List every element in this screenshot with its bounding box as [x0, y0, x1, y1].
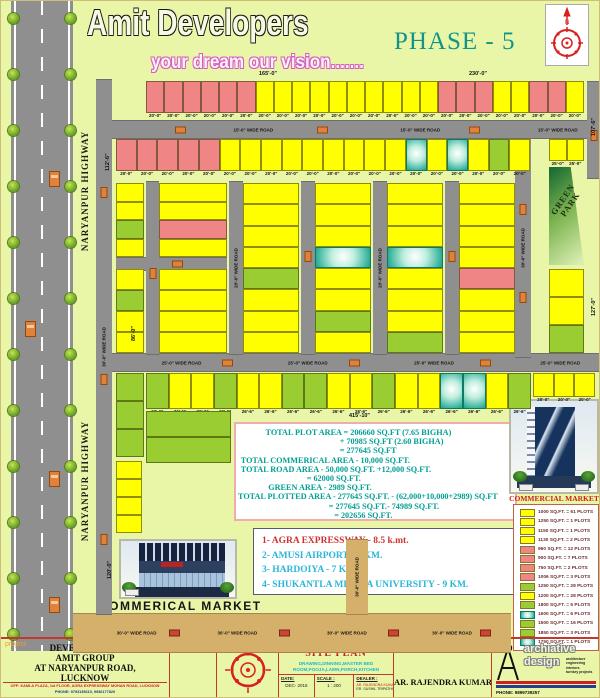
road-label: 30'-0" WIDE ROAD [117, 631, 157, 636]
plot-cell [459, 311, 515, 332]
plot-cell [387, 311, 443, 332]
plot-cell [427, 139, 448, 171]
road-label: 25'-0" WIDE ROAD [414, 360, 454, 365]
car-icon [388, 630, 399, 637]
legend-swatch [520, 527, 535, 535]
car-icon [175, 126, 186, 133]
plot-stack [159, 269, 227, 353]
plot-cell [468, 139, 489, 171]
plot-cell [219, 81, 237, 113]
plot-cell [385, 139, 406, 171]
dim-label: 20'-0" [493, 113, 511, 120]
area-summary-line: TOTAL ROAD AREA - 50,000 SQ.FT. +12,000 … [238, 465, 513, 474]
plot-stack [116, 373, 144, 457]
legend-swatch [520, 509, 535, 517]
dim-label: 20'-0" [566, 113, 584, 120]
plot-cell [508, 373, 531, 409]
palm-tree-icon [513, 471, 527, 482]
tree-icon [65, 181, 76, 192]
road [301, 181, 315, 355]
dim-label: 20'-0" [199, 171, 220, 178]
plot-cell [364, 139, 385, 171]
plot-cell [159, 183, 227, 202]
plot-cell [274, 81, 292, 113]
plot-cell [164, 81, 182, 113]
car-icon [520, 204, 527, 215]
palm-tree-icon [220, 582, 234, 593]
plot-cell [387, 183, 443, 204]
dim-label: 26'-6" [304, 409, 327, 416]
car-icon [317, 126, 328, 133]
dim-label: 20'-0" [344, 171, 365, 178]
plot-cell [183, 81, 201, 113]
dim-label: 20'-0" [178, 171, 199, 178]
distance-line: 3- HARDOIYA - 7 KM. [262, 563, 514, 578]
road-label: 20'-0" WIDE ROAD [234, 248, 239, 288]
plot-cell [549, 297, 584, 325]
tagline: your dream our vision....... [151, 52, 364, 74]
plot-cell [315, 226, 371, 247]
plot-cell [116, 429, 144, 457]
legend-label: 900 SQ.FT. = 7 PLOTS [538, 556, 588, 561]
plot-legend: 1000 SQ.FT. = 61 PLOTS1250 SQ.FT. = 1 PL… [513, 504, 599, 651]
legend-swatch [520, 583, 535, 591]
road-label: 30'-0" WIDE ROAD [102, 327, 107, 367]
car-icon [279, 630, 290, 637]
tree-icon [65, 349, 76, 360]
compass-icon: N [545, 4, 589, 66]
car-icon [149, 268, 156, 279]
plot-cell [116, 461, 142, 479]
plot-cell [159, 290, 227, 311]
legend-label: 1150 SQ.FT. = 1 PLOTS [538, 529, 590, 534]
plot-cell [243, 311, 299, 332]
tree-icon [65, 69, 76, 80]
plot-cell [169, 373, 192, 409]
tree-icon [8, 69, 19, 80]
legend-label: 1250 SQ.FT. = 1 PLOTS [538, 519, 590, 524]
plot-cell [292, 81, 310, 113]
road: 30'-0" WIDE ROAD30'-0" WIDE ROAD30'-0" W… [73, 613, 511, 653]
legend-row: 1150 SQ.FT. = 1 PLOTS [516, 527, 596, 535]
dim-label: 26'-6" [440, 409, 463, 416]
plot-cell [159, 239, 227, 258]
road-edge-line [14, 1, 16, 651]
plot-cell [282, 373, 305, 409]
road-label: 30'-0" WIDE ROAD [327, 631, 367, 636]
plot-cell [315, 289, 371, 310]
plot-cell [347, 81, 365, 113]
plot-cell [533, 373, 554, 397]
road-label: 15'-0" WIDE ROAD [233, 127, 273, 132]
plot-cell [459, 183, 515, 204]
dim-label: 20'-0" [164, 113, 182, 120]
road-label: 25'-0" WIDE ROAD [288, 360, 328, 365]
plot-cell [146, 437, 231, 463]
tree-icon [8, 573, 19, 584]
dimension-label: 107'-6" [591, 118, 597, 136]
dim-label: 25'-0" [567, 161, 585, 168]
tree-icon [8, 461, 19, 472]
logo-service-line: turnkey projects [566, 670, 592, 674]
plot-cell [116, 220, 144, 239]
plot-cell [116, 479, 142, 497]
logo-phone: PHONE: 9899739257 [496, 690, 540, 695]
legend-label: 960 SQ.FT. = 12 PLOTS [538, 547, 590, 552]
developer-line: AT NARYANPUR ROAD, [1, 663, 169, 673]
svg-text:N: N [565, 20, 569, 26]
dim-label: 20'-0" [347, 113, 365, 120]
plot-cell [116, 139, 137, 171]
dim-label: 26'-6" [282, 409, 305, 416]
dimension-label: 415'-10" [349, 413, 370, 419]
dim-label: 20'-0" [365, 113, 383, 120]
car-icon [349, 359, 360, 366]
dim-label: 20'-0" [427, 171, 448, 178]
car-icon [520, 292, 527, 303]
plot-cell [327, 373, 350, 409]
dim-label: 20'-0" [529, 113, 547, 120]
legend-row: 1250 SQ.FT. = 1 PLOTS [516, 518, 596, 526]
plot-cell [243, 226, 299, 247]
plot-cell [387, 332, 443, 353]
plot-cell [315, 247, 371, 268]
plot-cell [282, 139, 303, 171]
tree-icon [8, 13, 19, 24]
dim-label: 20'-0" [237, 113, 255, 120]
car-icon [449, 251, 456, 262]
title-subrow: DATE: DEC- 2018 SCALE : 1 : 200 DEALER :… [279, 674, 393, 697]
plot-cell [323, 139, 344, 171]
plot-cell [459, 226, 515, 247]
plot-cell [475, 81, 493, 113]
plot-stack [116, 461, 142, 533]
road-edge-line [68, 1, 70, 651]
plot-cell [344, 139, 365, 171]
plot-cell [178, 139, 199, 171]
road: 20'-0" WIDE ROAD [373, 181, 387, 355]
dim-label: 20'-0" [468, 171, 489, 178]
date-cell: DATE: DEC- 2018 [279, 675, 314, 697]
plot-cell [256, 81, 274, 113]
legend-swatch [520, 629, 535, 637]
dim-label: 20'-0" [420, 113, 438, 120]
tree-icon [8, 405, 19, 416]
plot-cell [243, 183, 299, 204]
dim-label: 20'-0" [509, 171, 530, 178]
plot-cell [302, 139, 323, 171]
plot-cell [456, 81, 474, 113]
logo-address-line [496, 681, 596, 684]
car-icon [49, 471, 60, 487]
tree-icon [8, 237, 19, 248]
tree-icon [65, 517, 76, 528]
car-icon [480, 630, 491, 637]
plot-stack [387, 183, 443, 353]
legend-label: 1250 SQ.FT. = 28 PLOTS [538, 584, 593, 589]
plot-stack [243, 183, 299, 353]
dim-label: 20'-0" [292, 113, 310, 120]
road [445, 181, 459, 355]
dim-label: 25'-0" [549, 161, 567, 168]
road-label: 30'-0" WIDE ROAD [355, 557, 360, 597]
dim-label: 20'-0" [220, 171, 241, 178]
distance-line: 4- SHUKANTLA MISHRA UNIVERSITY - 9 KM. [262, 578, 514, 593]
legend-label: 750 SQ.FT. = 2 PLOTS [538, 566, 588, 571]
dim-label: 20'-0" [274, 113, 292, 120]
commercial-market-label-left: COMMERICAL MARKET [99, 599, 262, 613]
plot-cell [383, 81, 401, 113]
plot-cell [146, 373, 169, 409]
plot-cell [440, 373, 463, 409]
road-label: 25'-0" WIDE ROAD [162, 360, 202, 365]
car-icon [125, 589, 139, 596]
plot-cell [116, 290, 144, 311]
plot-cell [315, 332, 371, 353]
plot-cell [116, 373, 144, 401]
plot-cell [406, 139, 427, 171]
legend-label: 1200 SQ.FT. = 28 PLOTS [538, 594, 593, 599]
dim-label: 20'-0" [402, 113, 420, 120]
plot-cell [214, 373, 237, 409]
legend-label: 1850 SQ.FT. = 3 PLOTS [538, 631, 590, 636]
building-top-floor [139, 543, 225, 561]
plot-row [146, 81, 584, 113]
plot-cell [159, 269, 227, 290]
plot-cell [387, 247, 443, 268]
plot-cell [315, 268, 371, 289]
dimension-label: 86'-0" [131, 326, 137, 341]
plot-stack [459, 183, 515, 353]
legend-row: 1500 SQ.FT. = 16 PLOTS [516, 620, 596, 628]
plot-cell [420, 81, 438, 113]
plot-cell [493, 81, 511, 113]
plot-cell [372, 373, 395, 409]
legend-swatch [520, 601, 535, 609]
brand-title: Amit Developers [87, 2, 309, 44]
car-icon [169, 630, 180, 637]
plot-row [549, 139, 584, 161]
plot-cell [146, 81, 164, 113]
car-icon [480, 359, 491, 366]
road-label: 30'-0" WIDE ROAD [432, 631, 472, 636]
plot-cell [243, 332, 299, 353]
plot-cell [261, 139, 282, 171]
plot-cell [116, 239, 144, 258]
plot-cell [549, 269, 584, 297]
plot-cell [159, 332, 227, 353]
tree-icon [8, 125, 19, 136]
plot-cell [220, 139, 241, 171]
dim-label: 26'-6" [237, 409, 260, 416]
plot-cell [459, 332, 515, 353]
plot-cell [459, 247, 515, 268]
plot-cell [159, 311, 227, 332]
dim-label: 20'-0" [554, 397, 575, 404]
plot-cell [549, 139, 567, 161]
road-label: 20'-0" WIDE ROAD [378, 248, 383, 288]
dimension-label: 127'-0" [591, 298, 597, 316]
dim-label: 26'-6" [259, 409, 282, 416]
area-summary-line: TOTAL PLOT AREA = 206660 SQ.FT (7.65 BIG… [238, 428, 513, 437]
legend-swatch [520, 573, 535, 581]
plot-cell [137, 139, 158, 171]
plot-stack [146, 411, 231, 463]
naryanpur-highway: NARYANPUR HIGHWAY NARYANPUR HIGHWAY [11, 1, 73, 651]
dim-label: 26'-6" [508, 409, 531, 416]
drawing-subtitle: ROOM,POOJA,LAWN,PORCH,KITCHEN [279, 667, 393, 672]
legend-row: 1130 SQ.FT. = 2 PLOTS [516, 536, 596, 544]
road-label: 15'-0" WIDE ROAD [400, 127, 440, 132]
tower-window-strip [527, 407, 535, 479]
plot-band: 20'-0"20'-0"20'-0"20'-0"20'-0"20'-0"20'-… [116, 139, 530, 178]
dim-label: 20'-0" [116, 171, 137, 178]
logo-name-2: design [524, 656, 559, 668]
dim-label: 20'-0" [438, 113, 456, 120]
plot-cell [240, 139, 261, 171]
dim-label: 20'-0" [219, 113, 237, 120]
dim-label: 20'-0" [282, 171, 303, 178]
dimension-label: 112'-6" [105, 153, 111, 171]
legend-label: 1600 SQ.FT. = 6 PLOTS [538, 612, 590, 617]
highway-label: NARYANPUR HIGHWAY [80, 131, 90, 251]
area-summary-line: = 277645 SQ.FT [238, 446, 513, 455]
dim-labels: 25'-0"25'-0" [549, 161, 584, 168]
scale-cell: SCALE : 1 : 200 [314, 675, 354, 697]
phase-label: PHASE - 5 [394, 28, 516, 56]
plot-stack [159, 183, 227, 257]
plot-cell [116, 311, 144, 332]
developer-line: AMIT GROUP [1, 653, 169, 663]
plot-cell [402, 81, 420, 113]
office-phone: PHONE: 9793135610, 9936177820 [3, 690, 167, 694]
legend-swatch [520, 536, 535, 544]
legend-row: 1250 SQ.FT. = 28 PLOTS [516, 583, 596, 591]
dim-label: 20'-0" [183, 113, 201, 120]
plot-row [533, 373, 595, 397]
plot-cell [116, 269, 144, 290]
plot-cell [387, 289, 443, 310]
plot-cell [509, 139, 530, 171]
plot-band: 26'-6"26'-6"26'-6"26'-6"26'-6"26'-6"26'-… [146, 373, 531, 416]
tree-icon [8, 181, 19, 192]
plot-cell [116, 497, 142, 515]
logo-name-1: archiative [524, 643, 575, 655]
dim-label: 20'-0" [511, 113, 529, 120]
dim-label: 26'-6" [418, 409, 441, 416]
road: 30'-0" WIDE ROAD [346, 539, 368, 615]
plot-cell [116, 183, 144, 202]
dim-label: 20'-0" [447, 171, 468, 178]
dim-label: 20'-0" [137, 171, 158, 178]
car-icon [101, 187, 108, 198]
area-summary-line: = 202656 SQ.FT. [238, 511, 513, 520]
site-plan-sheet: NARYANPUR HIGHWAY NARYANPUR HIGHWAY Amit… [0, 0, 600, 698]
plot-cell [459, 204, 515, 225]
plot-cell [243, 204, 299, 225]
plot-cell [489, 139, 510, 171]
dim-label: 26'-6" [463, 409, 486, 416]
plot-cell [463, 373, 486, 409]
plot-cell [259, 373, 282, 409]
plot-cell [387, 204, 443, 225]
plot-cell [237, 373, 260, 409]
office-address: OFF: KAMLA PLAZA, 1st FLOOR, AGRA EXPRES… [3, 682, 167, 688]
distance-line: 2- AMUSI AIRPORT - 8 KM. [262, 549, 514, 564]
plot-cell [574, 373, 595, 397]
dim-labels: 20'-0"20'-0"20'-0" [533, 397, 595, 404]
plot-cell [387, 226, 443, 247]
dim-label: 20'-0" [329, 113, 347, 120]
plot-cell [146, 411, 231, 437]
dim-label: 20'-0" [475, 113, 493, 120]
plot-cell [315, 183, 371, 204]
drawing-subtitle: DRAWING,DINNING,MASTER BED [279, 661, 393, 666]
logo-services: architectureengineeringinteriorsturnkey … [566, 657, 592, 674]
legend-row: 900 SQ.FT. = 7 PLOTS [516, 555, 596, 563]
car-icon [222, 359, 233, 366]
plot-cell [365, 81, 383, 113]
legend-swatch [520, 546, 535, 554]
dim-label: 20'-0" [548, 113, 566, 120]
legend-row: 1200 SQ.FT. = 28 PLOTS [516, 592, 596, 600]
area-summary-line: = 277645 SQ.FT.- 74989 SQ.FT. [238, 502, 513, 511]
car-icon [25, 321, 36, 337]
palm-tree-icon [581, 471, 595, 482]
dim-label: 26'-6" [395, 409, 418, 416]
dim-label: 20'-0" [456, 113, 474, 120]
tree-icon [65, 13, 76, 24]
road-center-line [41, 1, 43, 651]
plot-cell [529, 81, 547, 113]
plot-cell [116, 515, 142, 533]
building-signboard [161, 562, 183, 567]
architect-name: AR. RAJENDRA KUMAR [394, 677, 491, 687]
dim-label: 20'-0" [574, 397, 595, 404]
dim-label: 20'-0" [383, 113, 401, 120]
road [146, 181, 159, 355]
highway-label: NARYANPUR HIGHWAY [80, 421, 90, 541]
dim-label: 26'-6" [372, 409, 395, 416]
tree-icon [8, 349, 19, 360]
dim-label: 20'-0" [302, 171, 323, 178]
plot-cell [157, 139, 178, 171]
dimension-label: 230'-0" [469, 71, 487, 77]
plot-stack [116, 269, 144, 353]
dim-label: 20'-0" [256, 113, 274, 120]
legend-row: 1006 SQ.FT. = 3 PLOTS [516, 573, 596, 581]
tree-icon [65, 573, 76, 584]
legend-row: 1600 SQ.FT. = 6 PLOTS [516, 611, 596, 619]
dim-labels: 20'-0"20'-0"20'-0"20'-0"20'-0"20'-0"20'-… [146, 113, 584, 120]
legend-row: 750 SQ.FT. = 2 PLOTS [516, 564, 596, 572]
legend-swatch [520, 620, 535, 628]
legend-swatch [520, 611, 535, 619]
car-icon [172, 261, 183, 268]
plot-cell [554, 373, 575, 397]
plot-cell [438, 81, 456, 113]
plot-cell [243, 268, 299, 289]
plot-band: 25'-0"25'-0" [549, 139, 584, 168]
plot-stack [549, 269, 584, 353]
legend-swatch [520, 518, 535, 526]
commercial-market-render-left [119, 539, 237, 599]
plot-cell [447, 139, 468, 171]
legend-row: 1000 SQ.FT. = 61 PLOTS [516, 509, 596, 517]
car-icon [305, 251, 312, 262]
plot-cell [243, 289, 299, 310]
area-summary-line: + 70985 SQ.FT (2.60 BIGHA) [238, 437, 513, 446]
